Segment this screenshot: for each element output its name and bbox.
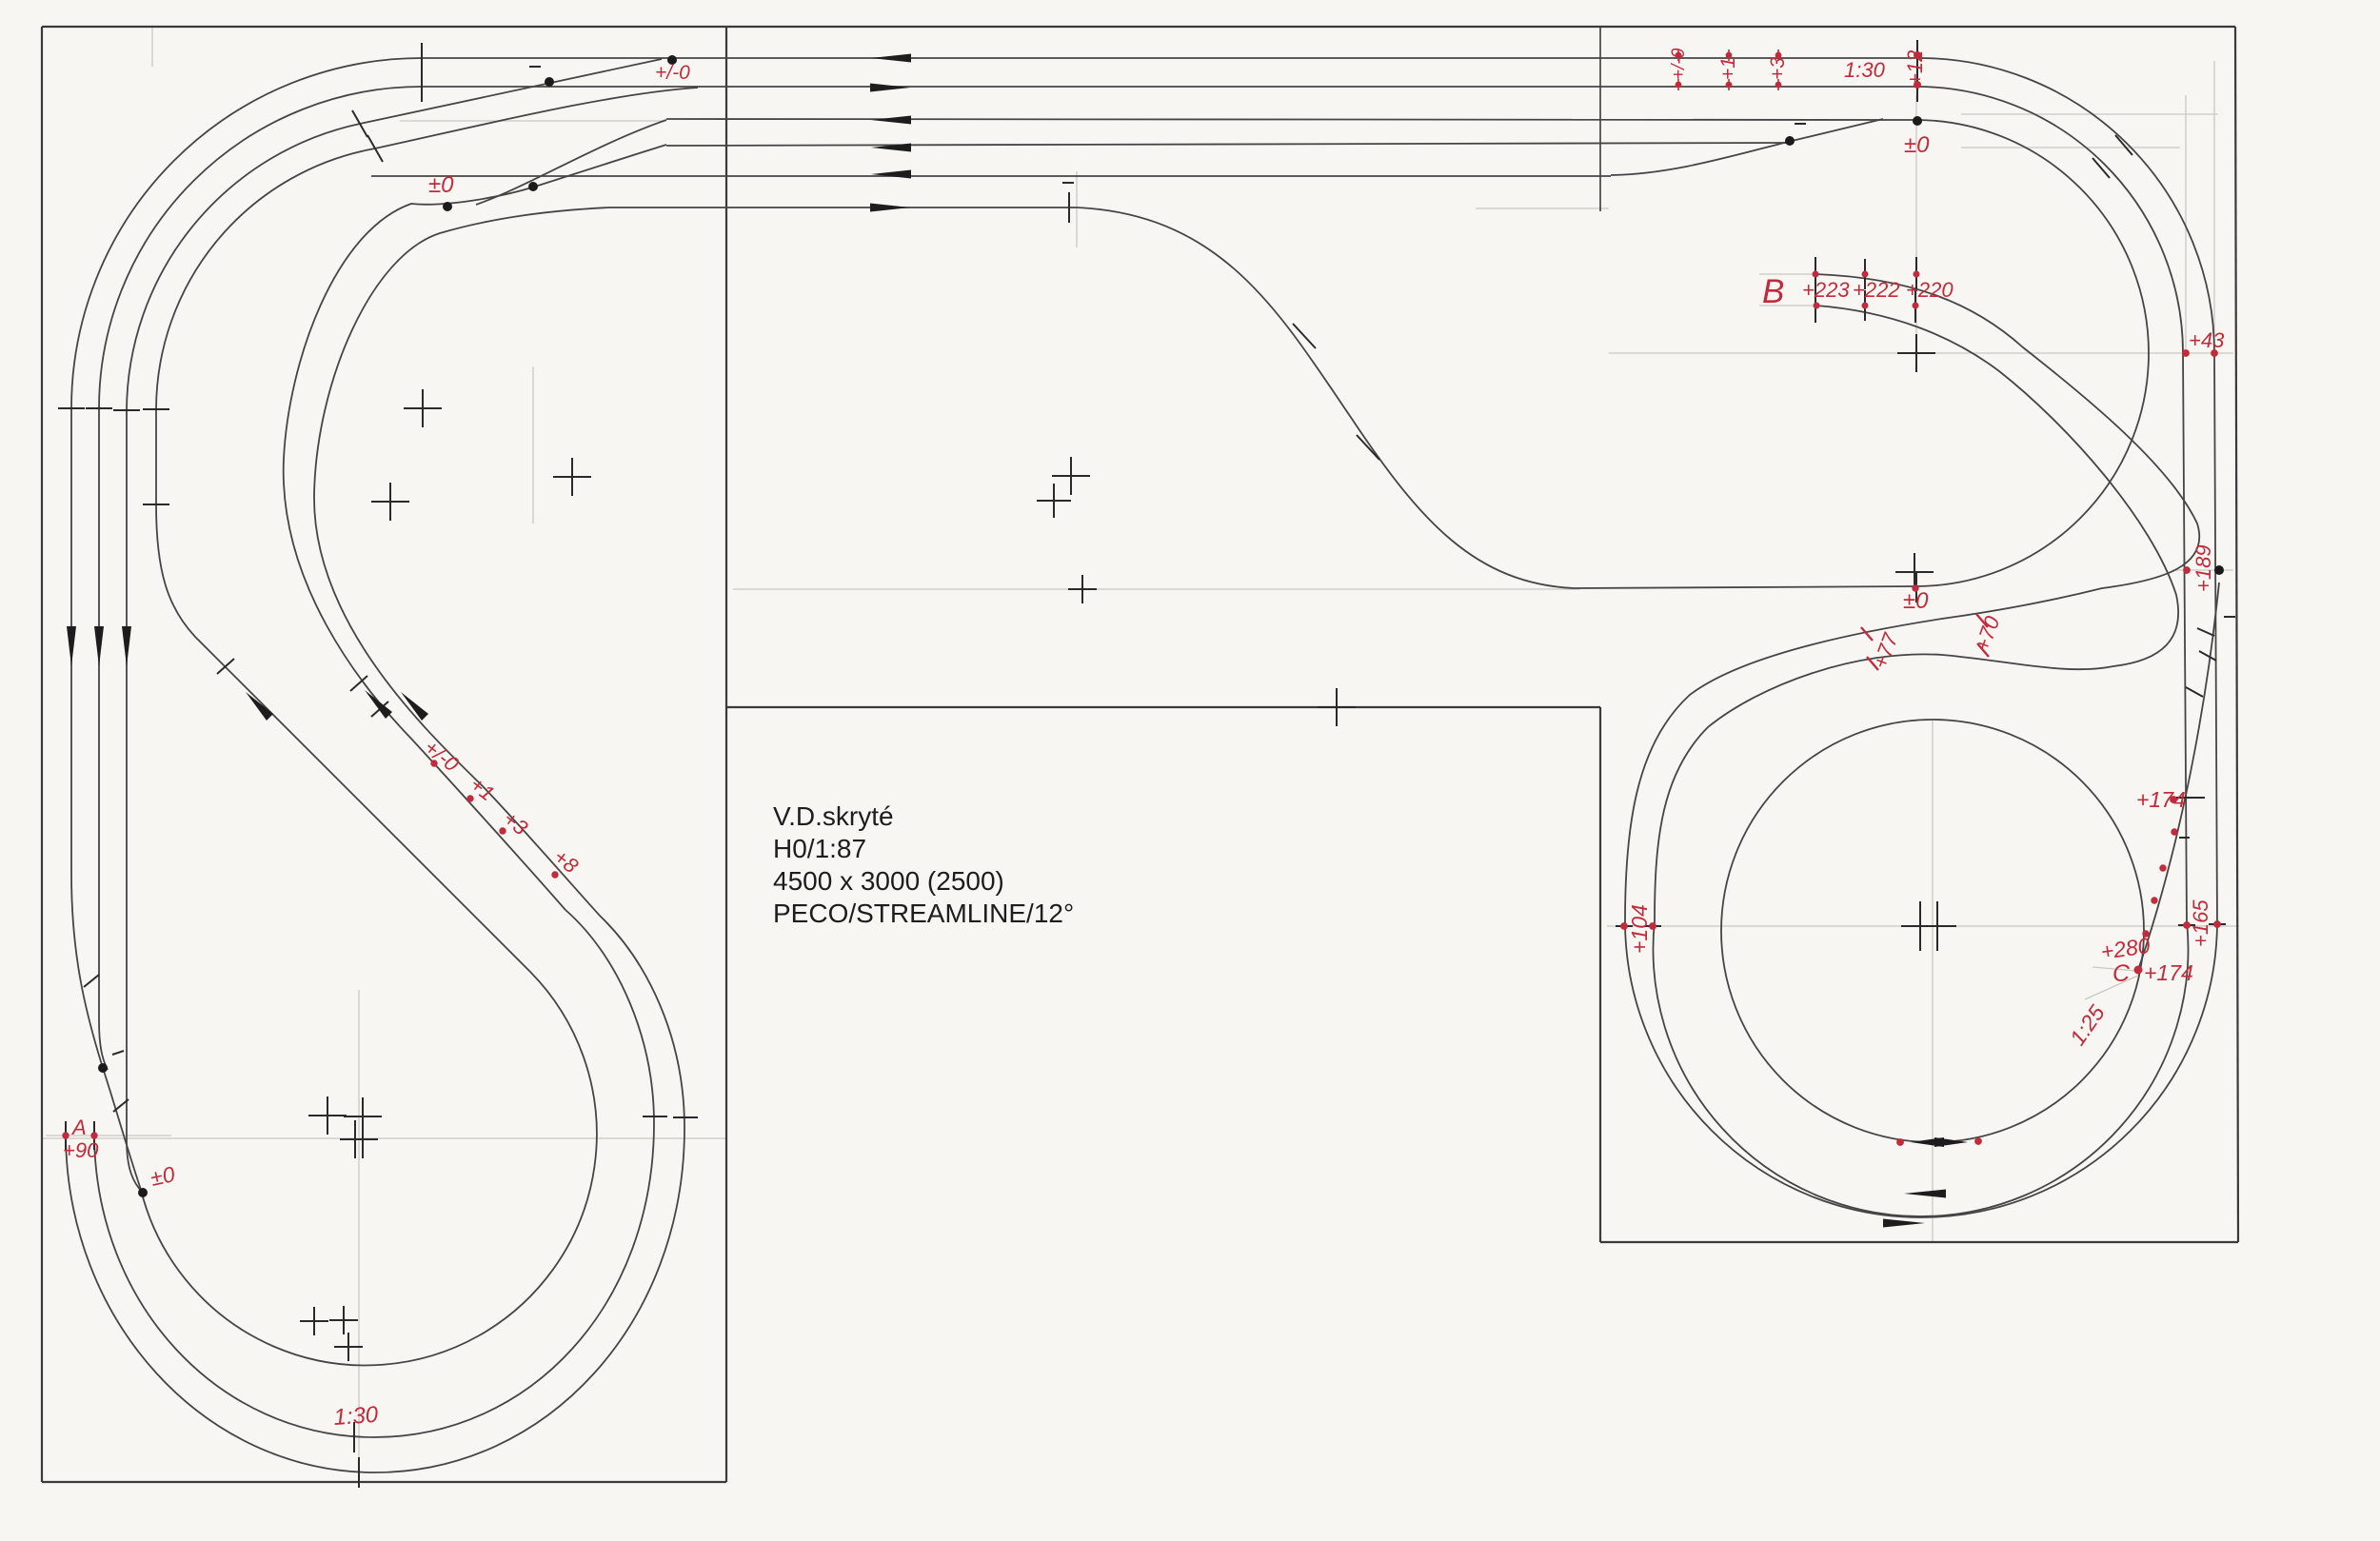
svg-text:V.D.skryté: V.D.skryté — [773, 801, 894, 831]
svg-text:±0: ±0 — [1904, 132, 1930, 158]
svg-text:1:30: 1:30 — [333, 1402, 380, 1431]
svg-text:B: B — [1762, 273, 1784, 310]
svg-text:±0: ±0 — [1903, 588, 1929, 614]
svg-text:+104: +104 — [1627, 904, 1652, 954]
svg-text:H0/1:87: H0/1:87 — [773, 834, 866, 863]
svg-text:+12: +12 — [1903, 50, 1927, 86]
svg-text:+3: +3 — [1767, 57, 1789, 80]
svg-text:+43: +43 — [2189, 328, 2225, 352]
svg-text:+165: +165 — [2189, 899, 2212, 947]
svg-text:+1: +1 — [1717, 57, 1739, 80]
svg-text:+/-0: +/-0 — [655, 62, 690, 84]
svg-text:+/-0: +/-0 — [1669, 48, 1689, 80]
svg-text:+174: +174 — [2144, 960, 2193, 985]
svg-text:+220: +220 — [1906, 278, 1954, 302]
svg-text:1:30: 1:30 — [1844, 58, 1886, 82]
svg-text:A: A — [70, 1116, 87, 1139]
svg-text:PECO/STREAMLINE/12°: PECO/STREAMLINE/12° — [773, 899, 1074, 928]
svg-text:+222: +222 — [1853, 278, 1900, 302]
svg-text:+174: +174 — [2136, 787, 2186, 812]
svg-text:+223: +223 — [1802, 278, 1850, 302]
svg-text:+189: +189 — [2192, 544, 2215, 592]
svg-text:4500 x 3000 (2500): 4500 x 3000 (2500) — [773, 866, 1004, 896]
svg-text:C: C — [2112, 960, 2131, 987]
svg-text:+90: +90 — [63, 1138, 99, 1162]
svg-text:±0: ±0 — [428, 172, 454, 198]
